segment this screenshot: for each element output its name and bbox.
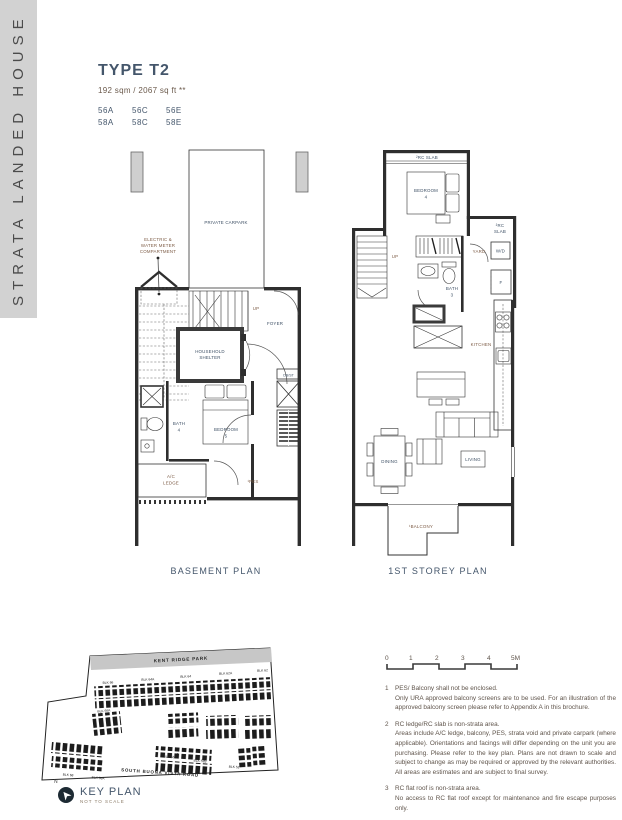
- svg-text:BLK 68A: BLK 68A: [91, 775, 105, 780]
- stairs-up: [189, 291, 248, 331]
- island-counter: [417, 372, 465, 405]
- footnotes: 1 PES/ Balcony shall not be enclosed. On…: [385, 684, 616, 820]
- label-up: UP: [392, 254, 399, 259]
- note-number: 1: [385, 684, 395, 713]
- scalebar: [385, 660, 535, 676]
- label-wd: W/D: [496, 249, 505, 254]
- label-dining: DINING: [381, 459, 398, 464]
- keyplan-subtitle: NOT TO SCALE: [80, 799, 142, 804]
- svg-text:COMPARTMENT: COMPARTMENT: [140, 249, 176, 254]
- label-bath3: BATH: [446, 286, 458, 291]
- pillar: [131, 152, 143, 192]
- unit-number: 58E: [166, 118, 200, 127]
- svg-text:WATER METER: WATER METER: [141, 243, 175, 248]
- label-yard: YARD: [473, 249, 486, 254]
- unit-number: 58A: [98, 118, 132, 127]
- label-ac-ledge: A/C: [167, 474, 175, 479]
- label-rc-slab-top: ²RC SLAB: [416, 155, 438, 160]
- note-text: RC ledge/RC slab is non-strata area.: [395, 720, 616, 730]
- note-number: 3: [385, 784, 395, 813]
- living-set: [417, 412, 498, 467]
- basement-walls-group: [131, 150, 308, 546]
- svg-text:BLK 66: BLK 66: [102, 680, 113, 685]
- label-rc-slab-right: ²RC: [496, 223, 504, 228]
- stair-hatch: [277, 410, 300, 446]
- svg-text:BLK 62: BLK 62: [257, 668, 268, 673]
- staircase: [357, 236, 387, 298]
- svg-text:LEDGE: LEDGE: [163, 481, 179, 486]
- area-text: 192 sqm / 2067 sq ft **: [98, 86, 200, 95]
- unit-numbers: 56A 56C 56E 58A 58C 58E: [98, 106, 200, 127]
- keyplan-title: KEY PLAN: [80, 786, 142, 798]
- svg-text:3: 3: [451, 293, 454, 298]
- note-text: PES/ Balcony shall not be enclosed.: [395, 684, 616, 694]
- svg-text:BLK 52: BLK 52: [229, 765, 240, 770]
- storey-walls-group: [352, 150, 516, 555]
- label-shelter: HOUSEHOLD: [195, 349, 225, 354]
- svg-text:ELECTRIC &: ELECTRIC &: [144, 237, 172, 242]
- band-title: STRATA LANDED HOUSE: [10, 0, 27, 318]
- note-text: Areas include A/C ledge, balcony, PES, s…: [395, 729, 616, 777]
- basement-plan-caption: BASEMENT PLAN: [110, 566, 322, 576]
- label-living: LIVING: [465, 457, 481, 462]
- label-up: UP: [253, 306, 260, 311]
- note-3: 3 RC flat roof is non-strata area. No ac…: [385, 784, 616, 813]
- note-text: No access to RC flat roof except for mai…: [395, 794, 616, 813]
- svg-text:BLK 62A: BLK 62A: [219, 671, 233, 676]
- label-bedroom4: BEDROOM: [414, 188, 438, 193]
- storey-plan-caption: 1ST STOREY PLAN: [348, 566, 528, 576]
- north-compass-icon: N: [58, 787, 74, 803]
- unit-number: 56E: [166, 106, 200, 115]
- unit-number: 56C: [132, 106, 166, 115]
- basement-floorplan: PRIVATE CARPARK ELECTRIC & WATER METER C…: [110, 148, 322, 560]
- svg-text:4: 4: [425, 195, 428, 200]
- ledge-teeth: [140, 500, 205, 504]
- note-1: 1 PES/ Balcony shall not be enclosed. On…: [385, 684, 616, 713]
- unit-number: 56A: [98, 106, 132, 115]
- pillar: [296, 152, 308, 192]
- svg-text:BLK 64A: BLK 64A: [141, 677, 155, 682]
- private-carpark-outline: [189, 150, 264, 288]
- label-private-carpark: PRIVATE CARPARK: [204, 220, 247, 225]
- type-title: TYPE T2: [98, 62, 200, 80]
- first-storey-floorplan: ²RC SLAB BEDROOM 4 ²RC SLAB UP YARD W/D …: [348, 148, 528, 560]
- closet-x: [277, 381, 300, 407]
- svg-text:SLAB: SLAB: [494, 229, 506, 234]
- label-fridge: F: [500, 280, 503, 285]
- plan-header: TYPE T2 192 sqm / 2067 sq ft ** 56A 56C …: [98, 62, 200, 127]
- unit-number: 58C: [132, 118, 166, 127]
- strata-landed-house-band: STRATA LANDED HOUSE: [0, 0, 37, 318]
- note-text: Only URA approved balcony screens are to…: [395, 694, 616, 713]
- label-dbst: DB/ST: [283, 374, 294, 378]
- north-letter: N: [54, 779, 58, 785]
- label-kitchen: KITCHEN: [471, 342, 492, 347]
- door-arc: [274, 291, 298, 315]
- label-bath4: BATH: [173, 421, 185, 426]
- svg-text:SHELTER: SHELTER: [199, 355, 220, 360]
- bed: [407, 172, 459, 223]
- svg-text:4: 4: [178, 428, 181, 433]
- label-bedroom5: BEDROOM: [214, 427, 238, 432]
- kitchen-counter: [494, 300, 512, 430]
- window: [510, 447, 516, 477]
- label-foyer: FOYER: [267, 321, 283, 326]
- bath4-fixtures: [141, 386, 163, 452]
- balcony-outline: [388, 506, 458, 555]
- strata-void-x: [414, 306, 462, 348]
- note-2: 2 RC ledge/RC slab is non-strata area. A…: [385, 720, 616, 778]
- label-balcony: ¹BALCONY: [409, 524, 433, 529]
- note-text: RC flat roof is non-strata area.: [395, 784, 616, 794]
- keyplan-legend: N KEY PLAN NOT TO SCALE: [58, 786, 142, 804]
- label-pes: ¹PES: [247, 479, 258, 484]
- wardrobe-hangers: [416, 236, 463, 257]
- svg-text:5: 5: [225, 434, 228, 439]
- note-number: 2: [385, 720, 395, 778]
- svg-text:BLK 64: BLK 64: [180, 674, 191, 679]
